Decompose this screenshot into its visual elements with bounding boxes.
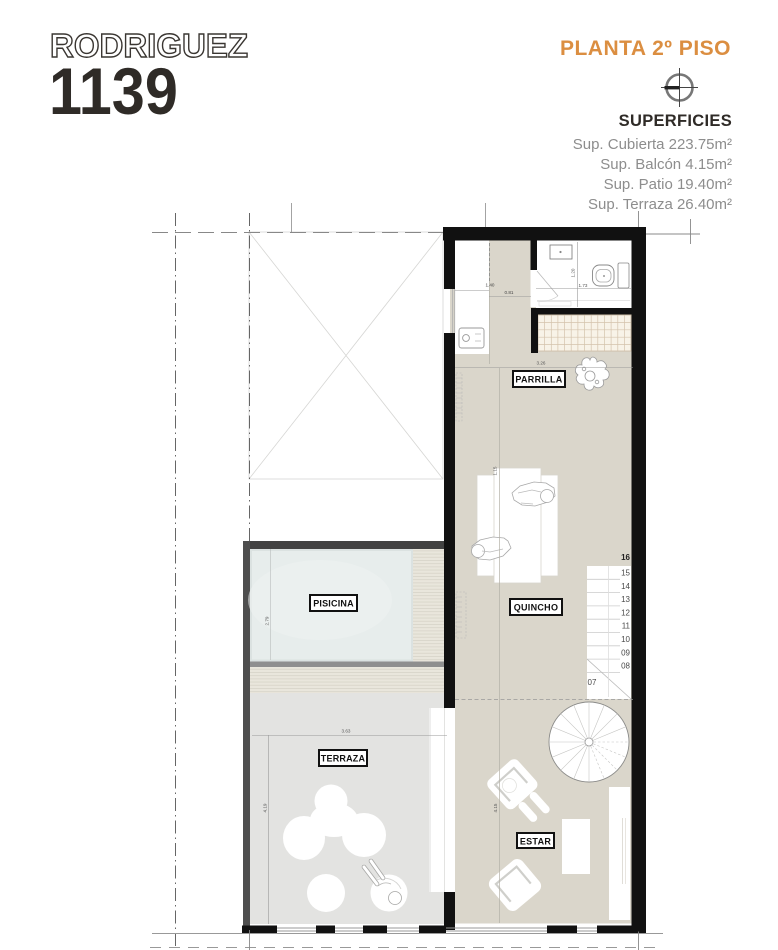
svg-text:13: 13 bbox=[621, 595, 630, 604]
svg-text:2.79: 2.79 bbox=[265, 616, 270, 625]
svg-text:QUINCHO: QUINCHO bbox=[514, 603, 559, 613]
svg-text:4.19: 4.19 bbox=[263, 803, 268, 812]
svg-text:PISICINA: PISICINA bbox=[313, 599, 354, 609]
svg-text:PARRILLA: PARRILLA bbox=[515, 375, 562, 385]
svg-text:1.40: 1.40 bbox=[486, 283, 495, 288]
svg-text:4.15: 4.15 bbox=[493, 803, 498, 812]
svg-text:ESTAR: ESTAR bbox=[520, 837, 552, 847]
svg-text:3.26: 3.26 bbox=[537, 361, 546, 366]
svg-text:1.20: 1.20 bbox=[571, 268, 576, 277]
svg-text:07: 07 bbox=[588, 678, 597, 687]
svg-text:14: 14 bbox=[621, 582, 630, 591]
svg-text:16: 16 bbox=[621, 553, 630, 562]
svg-text:0.81: 0.81 bbox=[505, 290, 514, 295]
svg-text:08: 08 bbox=[621, 662, 630, 671]
svg-text:11: 11 bbox=[622, 622, 631, 631]
svg-text:12: 12 bbox=[621, 608, 630, 617]
svg-text:TERRAZA: TERRAZA bbox=[321, 754, 366, 764]
svg-text:1.15: 1.15 bbox=[493, 466, 498, 475]
svg-text:10: 10 bbox=[621, 635, 630, 644]
svg-text:09: 09 bbox=[621, 648, 630, 657]
svg-text:3.63: 3.63 bbox=[342, 729, 351, 734]
svg-text:1.73: 1.73 bbox=[579, 283, 588, 288]
svg-text:15: 15 bbox=[621, 569, 630, 578]
